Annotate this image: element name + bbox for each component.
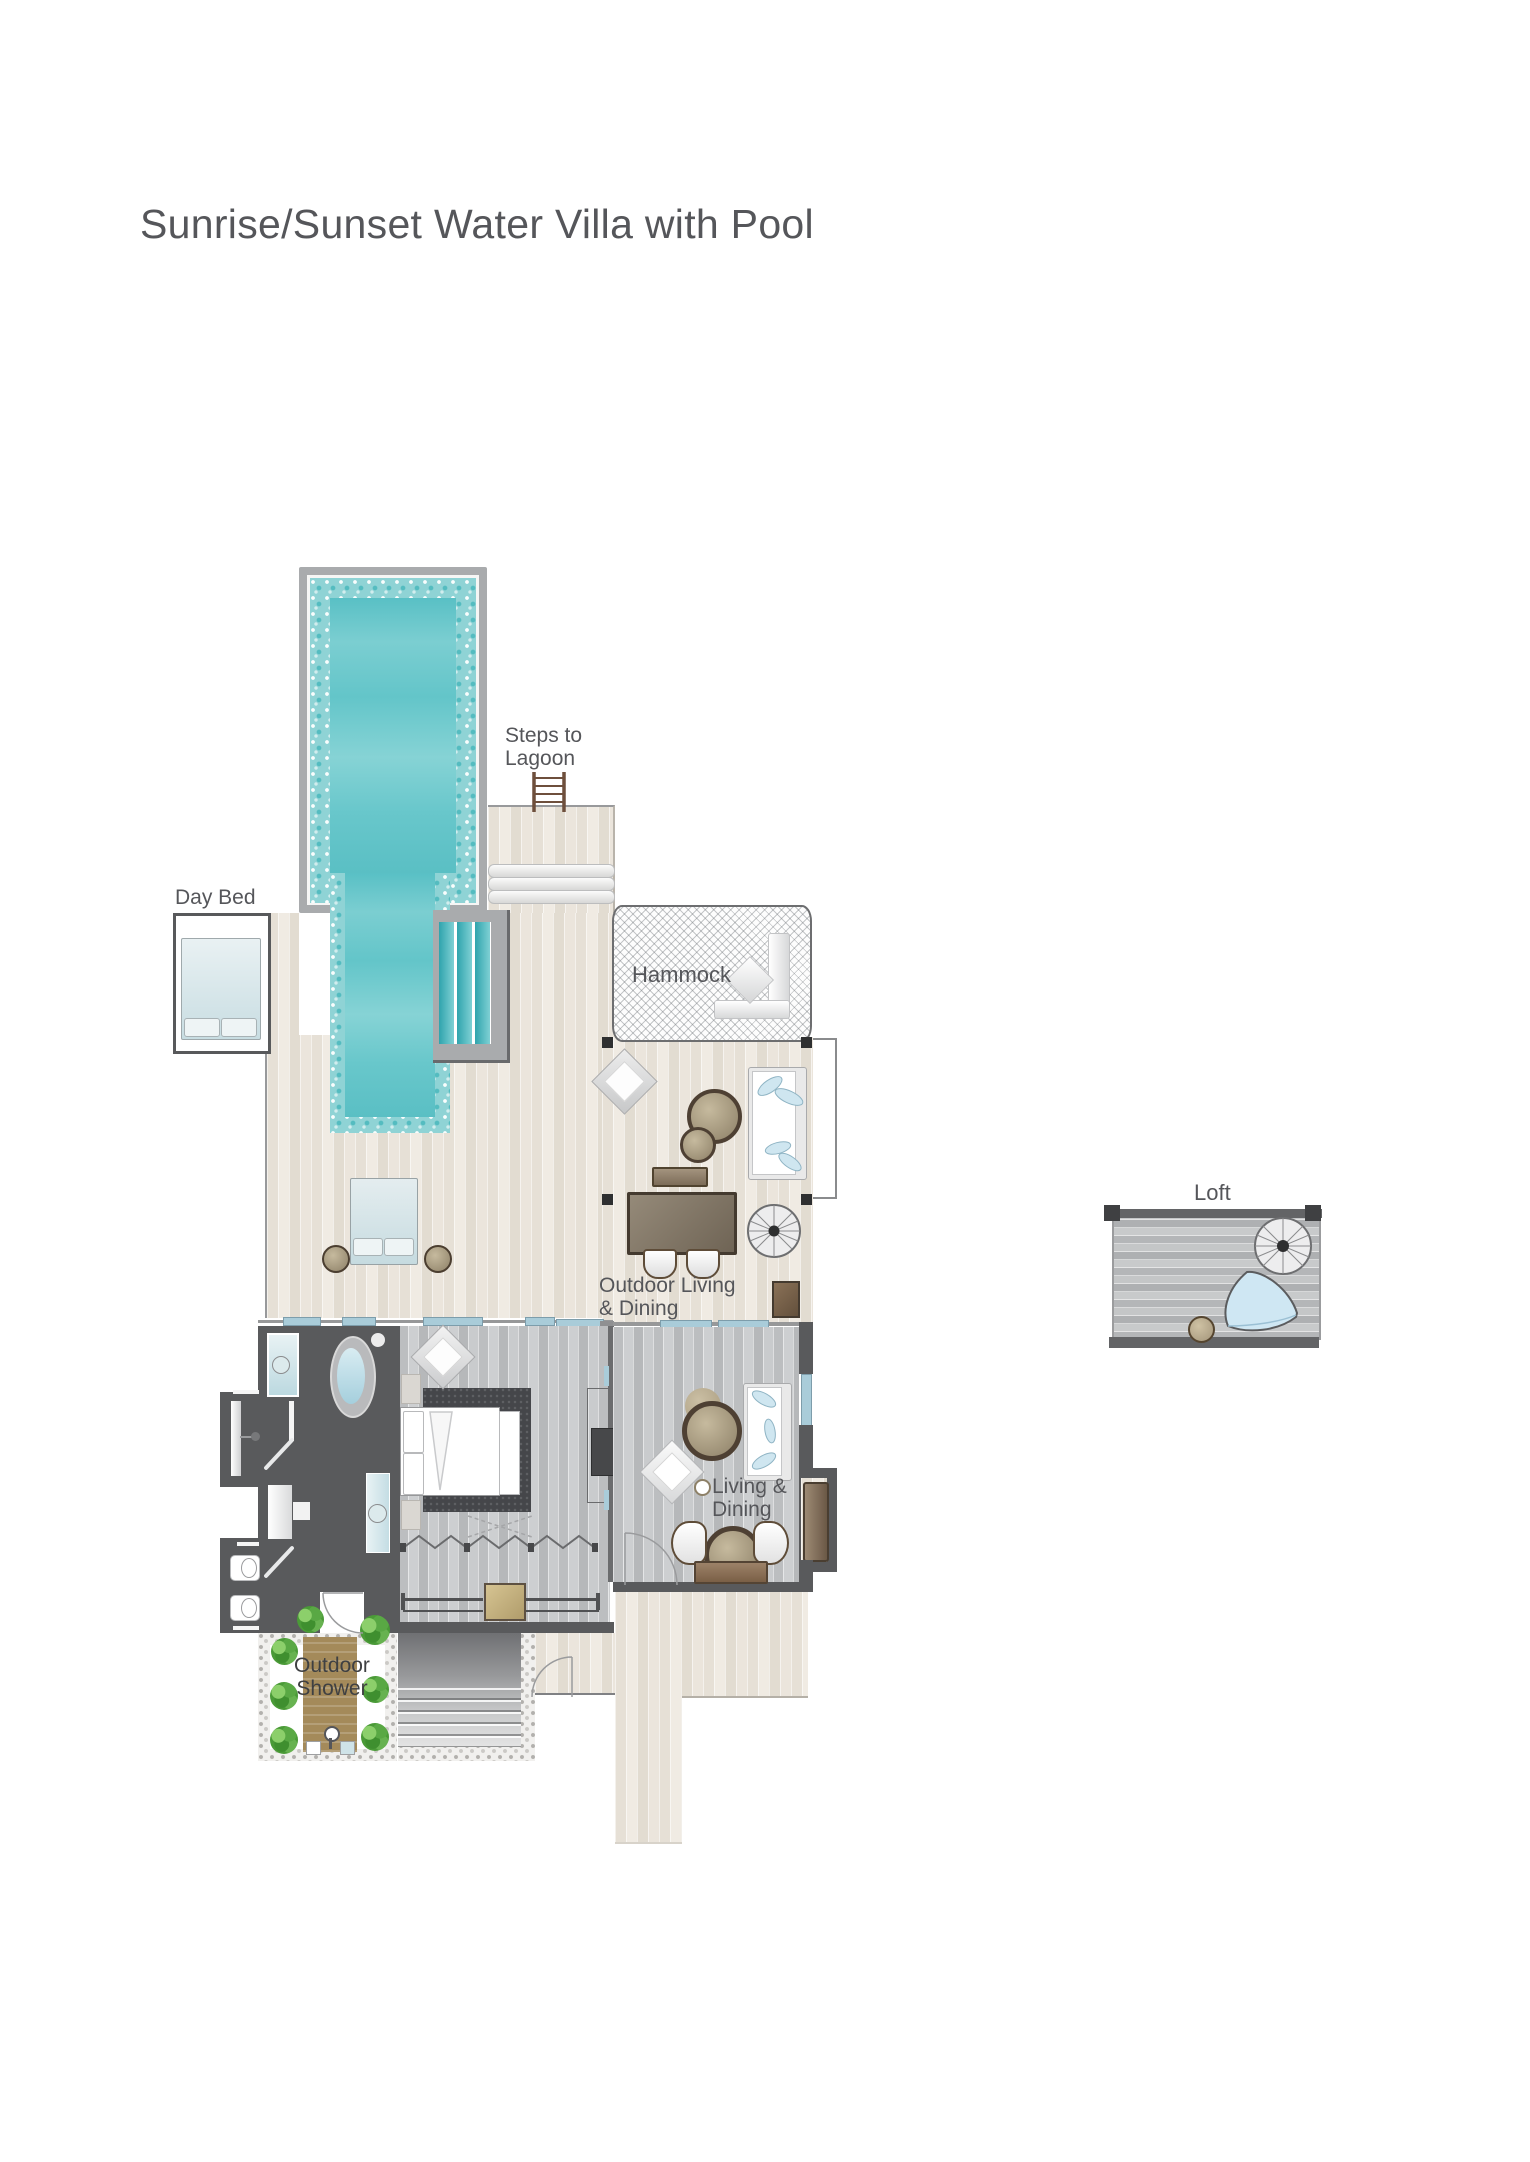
nightstand — [401, 1374, 421, 1404]
window — [604, 1366, 609, 1386]
dining-chair — [753, 1521, 789, 1565]
dining-chair — [671, 1521, 707, 1565]
loft-label: Loft — [1194, 1181, 1231, 1204]
deck-ledge — [813, 1038, 837, 1199]
bidet — [230, 1595, 260, 1621]
deck-edge — [682, 1696, 808, 1698]
window — [801, 1374, 812, 1427]
outdoor-living-label: Outdoor Living& Dining — [599, 1274, 736, 1320]
wall-slit — [233, 1390, 259, 1394]
lounger-pillow — [353, 1238, 383, 1256]
living-east-wall — [799, 1425, 813, 1470]
pool-side-gap — [299, 913, 330, 1035]
loft-south-wall — [1109, 1337, 1319, 1348]
plant — [270, 1726, 298, 1754]
shower-step — [340, 1741, 355, 1755]
wall-slit — [237, 1542, 259, 1546]
window — [423, 1317, 483, 1326]
bidet-bowl — [241, 1598, 257, 1618]
window — [525, 1317, 555, 1326]
sideboard — [694, 1561, 768, 1584]
stool — [371, 1333, 385, 1347]
outdoor-sofa — [748, 1067, 807, 1180]
living-dining-label: Living &Dining — [712, 1475, 787, 1521]
shower-head — [251, 1432, 260, 1441]
toilet-bowl — [241, 1558, 257, 1578]
washbasin — [272, 1356, 290, 1374]
window — [342, 1317, 376, 1326]
side-table — [322, 1245, 350, 1273]
lounger-slat — [475, 922, 490, 1044]
pool-water — [330, 598, 456, 873]
coffee-table — [682, 1401, 742, 1461]
deck-post — [801, 1037, 812, 1048]
veranda-bench — [484, 1583, 526, 1621]
lounger-slat — [439, 922, 454, 1044]
deck-step — [488, 864, 615, 878]
plant — [360, 1615, 390, 1645]
tv — [591, 1428, 615, 1476]
lounger-slat — [457, 922, 472, 1044]
bathtub-water — [337, 1348, 365, 1404]
bed-bench — [499, 1411, 520, 1495]
bed-pillow — [403, 1411, 424, 1453]
pool-lounger — [439, 922, 491, 1044]
floor-plan: Sunrise/Sunset Water Villa with Pool Ste… — [0, 0, 1530, 2162]
loft-post — [1104, 1205, 1120, 1221]
planter-box — [772, 1281, 800, 1318]
deck-step — [488, 877, 615, 891]
bedroom-south-wall — [398, 1622, 614, 1633]
living-sofa — [743, 1383, 792, 1481]
outdoor-shower-label: OutdoorShower — [288, 1654, 376, 1700]
sofa-seat — [747, 1387, 782, 1476]
wall-slit — [289, 1401, 294, 1441]
veranda-rail — [403, 1598, 483, 1612]
rail-post — [596, 1593, 600, 1610]
shower-screen — [231, 1401, 241, 1476]
deck-post — [602, 1194, 613, 1205]
hammock-lounger — [714, 1000, 790, 1019]
loft-post — [1305, 1205, 1321, 1221]
day-bed-pillow — [184, 1018, 220, 1037]
chair-seat — [423, 1337, 463, 1377]
rail-post — [401, 1593, 405, 1610]
deck-post — [602, 1037, 613, 1048]
loft-pouffe — [1188, 1316, 1215, 1343]
day-bed-label: Day Bed — [175, 886, 256, 909]
armchair-seat — [652, 1452, 692, 1492]
stool — [694, 1479, 711, 1496]
sofa-seat — [752, 1071, 796, 1175]
vanity — [268, 1485, 292, 1539]
hammock-label: Hammock — [632, 963, 731, 986]
armchair-seat — [604, 1061, 645, 1102]
stair-landing — [535, 1633, 615, 1695]
outdoor-dining-table — [627, 1192, 737, 1255]
plant — [361, 1723, 389, 1751]
pool-water-channel — [345, 873, 435, 1117]
living-east-wall — [799, 1322, 813, 1374]
walkway — [615, 1697, 682, 1844]
bed-pillow — [403, 1453, 424, 1495]
dining-bench — [652, 1167, 708, 1187]
bathroom-door-opening — [320, 1592, 364, 1633]
stair-treads — [398, 1688, 521, 1747]
window — [604, 1490, 609, 1510]
washbasin — [368, 1504, 387, 1523]
day-bed-pillow — [221, 1018, 257, 1037]
shower-drain — [324, 1726, 340, 1742]
loft-floor — [1112, 1217, 1321, 1340]
side-table — [424, 1245, 452, 1273]
window — [283, 1317, 321, 1326]
deck-post — [801, 1194, 812, 1205]
deck-step — [488, 890, 615, 904]
rear-deck — [615, 1582, 808, 1698]
toilet — [230, 1555, 260, 1581]
loft-north-wall — [1107, 1209, 1322, 1218]
balcony-bench — [803, 1482, 829, 1562]
wall-slit — [233, 1626, 259, 1630]
plant — [297, 1606, 324, 1633]
page-title: Sunrise/Sunset Water Villa with Pool — [140, 201, 814, 248]
lounger-pillow — [384, 1238, 414, 1256]
shower-pipe — [329, 1738, 332, 1749]
nightstand — [401, 1500, 421, 1530]
shower-step — [306, 1741, 321, 1755]
steps-to-lagoon-label: Steps toLagoon — [505, 724, 582, 770]
veranda-rail — [521, 1598, 599, 1612]
outdoor-pouffe — [680, 1127, 716, 1163]
shelf — [293, 1502, 310, 1520]
